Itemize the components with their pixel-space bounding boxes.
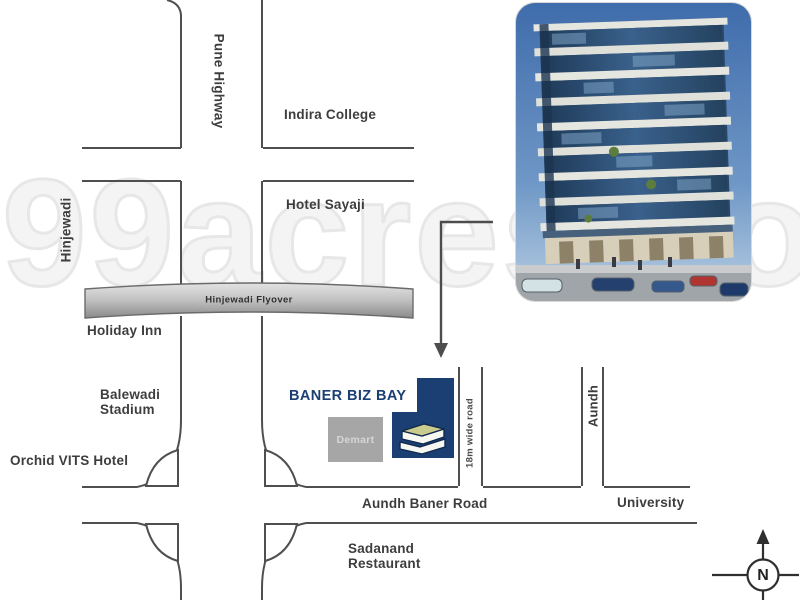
label-hinjewadi: Hinjewadi <box>59 198 74 263</box>
label-indira-college: Indira College <box>284 107 376 122</box>
label-hotel-sayaji: Hotel Sayaji <box>286 197 365 212</box>
project-name-label: BANER BIZ BAY <box>289 388 406 404</box>
building-photo <box>515 2 752 302</box>
label-balewadi-line1: Balewadi <box>100 387 160 402</box>
compass-north-label: N <box>757 567 769 585</box>
label-pune-highway: Pune Highway <box>212 34 227 129</box>
label-aundh: Aundh <box>586 385 601 427</box>
label-sadanand-restaurant: Sadanand Restaurant <box>348 541 421 571</box>
label-holiday-inn: Holiday Inn <box>87 323 162 338</box>
label-sadanand-line1: Sadanand <box>348 541 421 556</box>
label-aundh-baner-road: Aundh Baner Road <box>362 496 487 511</box>
stacked-books-icon <box>395 417 451 457</box>
label-hinjewadi-flyover: Hinjewadi Flyover <box>205 295 293 306</box>
demart-landmark-box: Demart <box>328 417 383 462</box>
interchange-wedges <box>146 450 297 561</box>
demart-label: Demart <box>337 434 375 446</box>
label-orchid-vits-hotel: Orchid VITS Hotel <box>10 453 128 468</box>
location-arrow-icon <box>434 222 493 358</box>
compass-icon <box>712 529 799 600</box>
label-sadanand-line2: Restaurant <box>348 556 421 571</box>
label-18m-wide-road: 18m wide road <box>463 398 478 468</box>
label-university: University <box>617 495 684 510</box>
label-balewadi-line2: Stadium <box>100 402 160 417</box>
project-logo-column <box>417 378 454 414</box>
building-photo-illustration <box>516 3 752 302</box>
label-balewadi-stadium: Balewadi Stadium <box>100 387 160 417</box>
location-map: 99acres.com <box>0 0 800 600</box>
